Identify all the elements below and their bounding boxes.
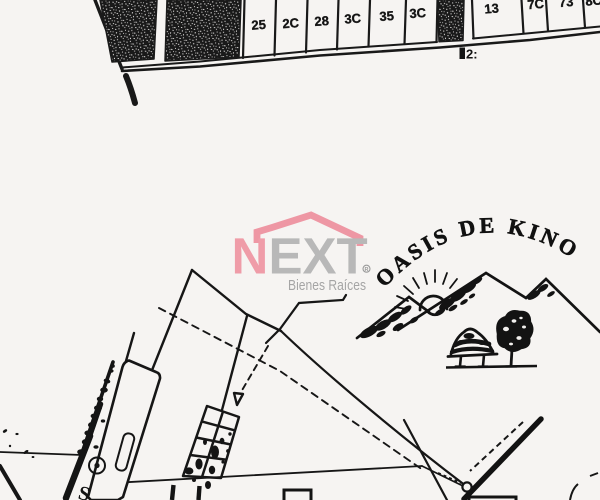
svg-text:7C: 7C	[527, 0, 545, 12]
svg-text:Bienes Raíces: Bienes Raíces	[288, 278, 366, 294]
svg-text:28: 28	[314, 13, 329, 29]
svg-text:EXT: EXT	[269, 228, 368, 285]
svg-text:13: 13	[484, 0, 500, 16]
svg-text:8C: 8C	[585, 0, 600, 9]
svg-text:2C: 2C	[282, 15, 300, 31]
svg-text:2:: 2:	[466, 47, 478, 62]
svg-text:3C: 3C	[344, 10, 362, 26]
svg-text:R: R	[365, 267, 369, 273]
svg-text:N: N	[232, 228, 269, 285]
svg-text:25: 25	[251, 17, 266, 33]
svg-text:35: 35	[379, 8, 394, 24]
svg-text:3C: 3C	[409, 5, 427, 21]
svg-text:73: 73	[558, 0, 574, 10]
